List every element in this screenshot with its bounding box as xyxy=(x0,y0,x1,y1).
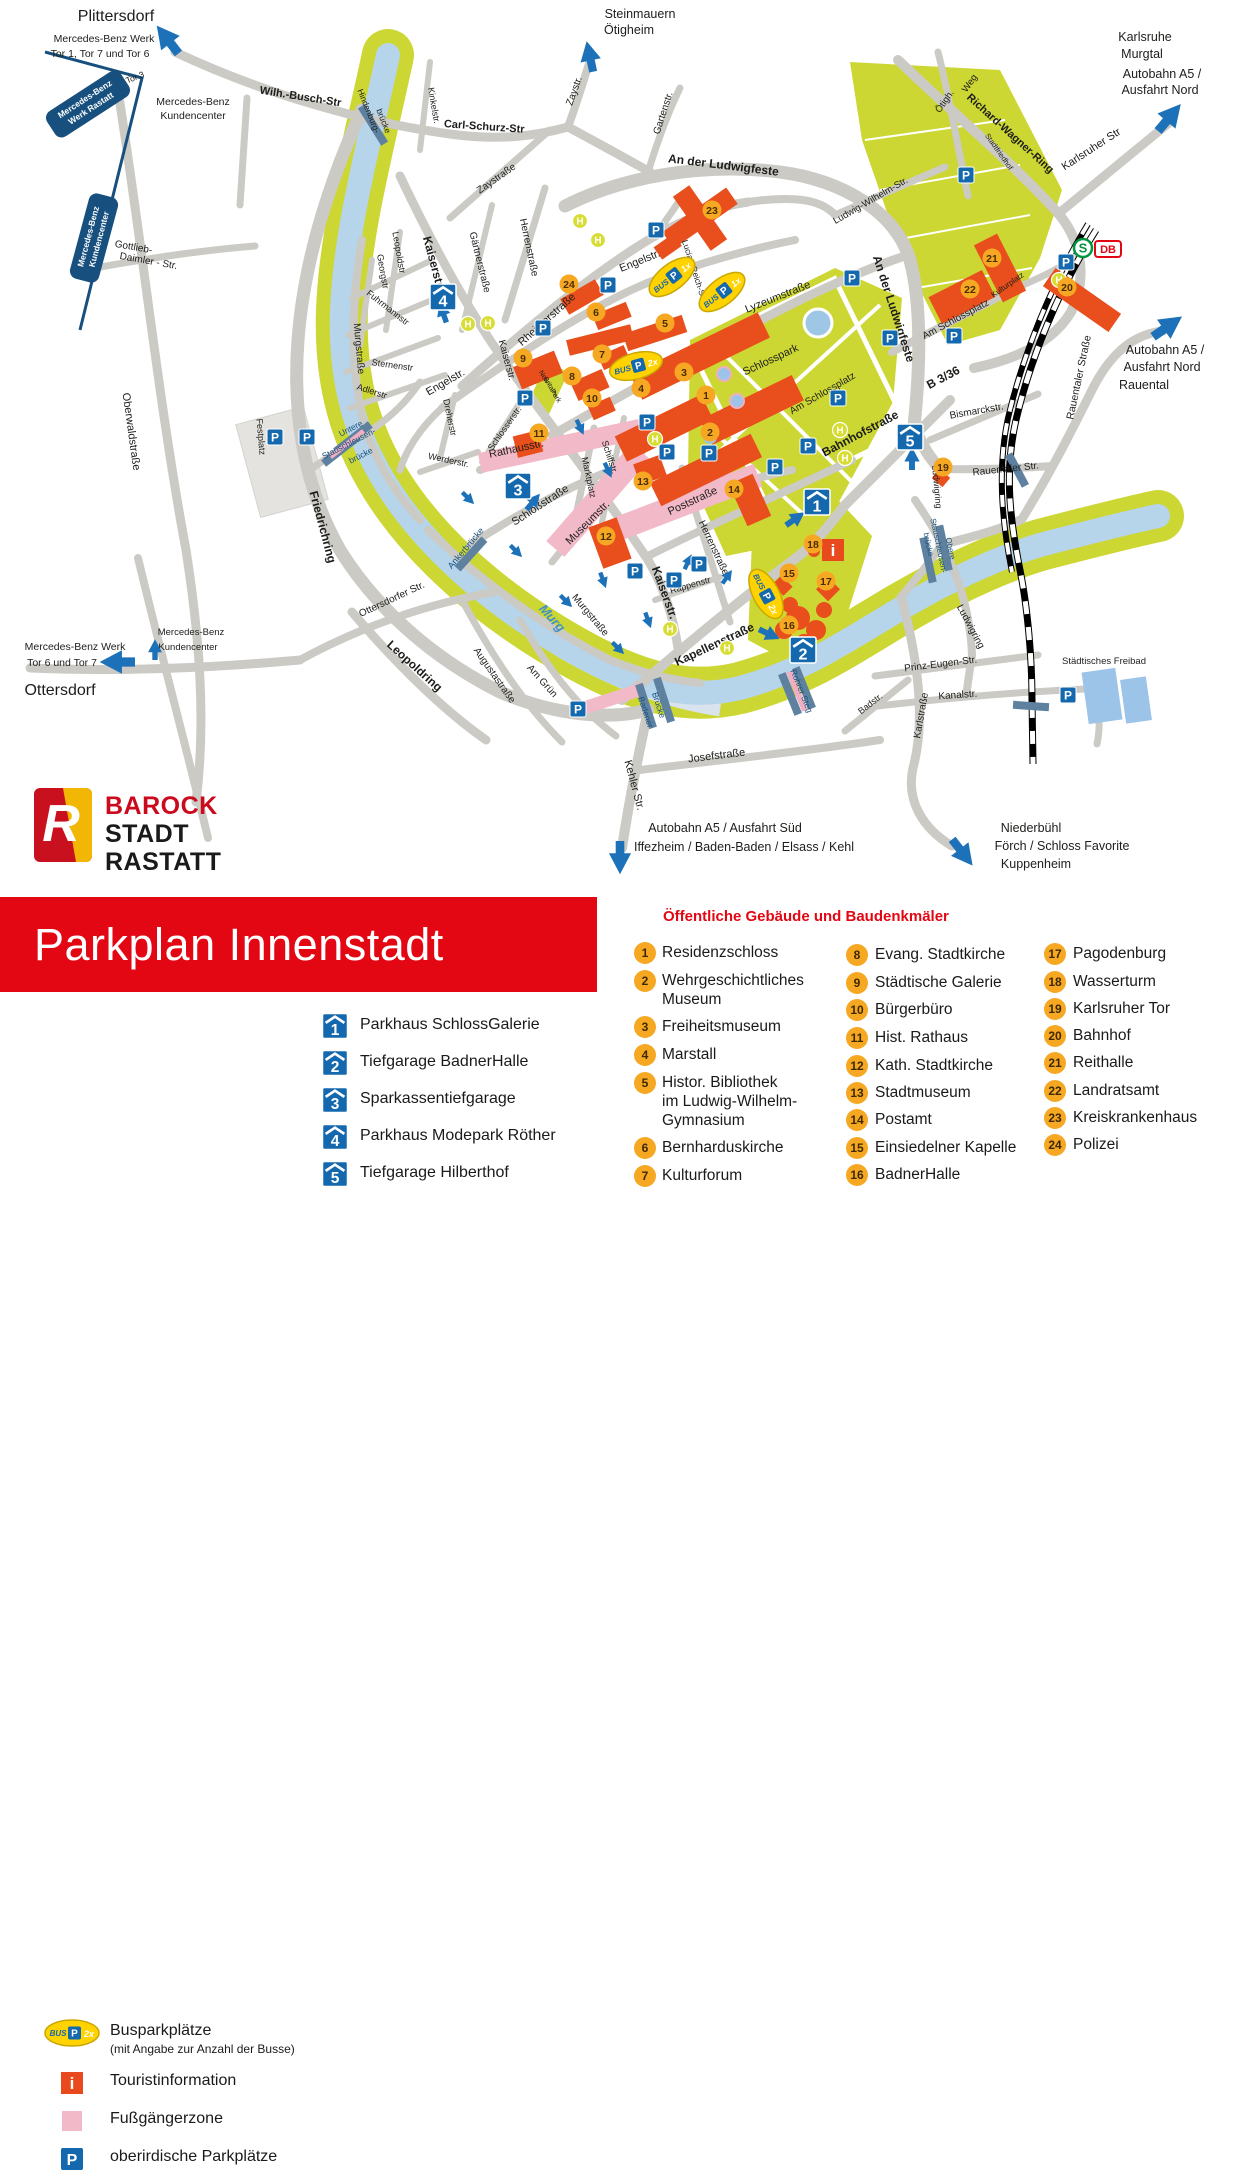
svg-text:18: 18 xyxy=(807,539,819,551)
poi-number-badge: 14 xyxy=(846,1109,868,1131)
poi-item-label: BadnerHalle xyxy=(875,1165,960,1184)
road xyxy=(902,600,952,846)
parking-icon: P xyxy=(666,572,682,588)
poi-marker-2: 2 xyxy=(701,423,720,442)
parking-icon: P xyxy=(844,270,860,286)
poi-marker-12: 12 xyxy=(597,527,616,546)
map-label: Mercedes-Benz Werk xyxy=(25,641,127,653)
poi-item-label: Evang. Stadtkirche xyxy=(875,945,1005,964)
direction-arrow-icon xyxy=(609,841,631,874)
map-label: Oberwaldstraße xyxy=(120,392,143,471)
svg-text:17: 17 xyxy=(820,576,832,588)
svg-text:P: P xyxy=(539,322,547,336)
svg-text:P: P xyxy=(271,431,279,445)
poi-marker-4: 4 xyxy=(632,379,651,398)
poi-marker-19: 19 xyxy=(934,458,953,477)
logo-line2: STADT xyxy=(105,820,221,848)
garage-item-label: Sparkassentiefgarage xyxy=(360,1090,516,1108)
garage-item-label: Tiefgarage BadnerHalle xyxy=(360,1053,528,1071)
svg-text:2: 2 xyxy=(331,1059,340,1076)
garage-4-icon: 4 xyxy=(320,1122,350,1152)
map-label: Steinmauern xyxy=(605,7,676,21)
poi-marker-11: 11 xyxy=(530,424,549,443)
poi-heading: Öffentliche Gebäude und Baudenkmäler xyxy=(663,908,949,925)
svg-text:3: 3 xyxy=(331,1096,340,1113)
svg-text:5: 5 xyxy=(331,1170,340,1187)
svg-text:16: 16 xyxy=(783,620,795,632)
poi-item-label: Landratsamt xyxy=(1073,1081,1159,1100)
garage-item-label: Parkhaus Modepark Röther xyxy=(360,1127,556,1145)
map-label: Tor 6 und Tor 7 xyxy=(27,657,97,669)
svg-text:19: 19 xyxy=(937,462,949,474)
info-icon: i xyxy=(42,2068,102,2098)
bus-stop-icon: H xyxy=(573,214,588,229)
map-legend: BUSP2xBusparkplätze(mit Angabe zur Anzah… xyxy=(0,1000,320,1200)
road xyxy=(240,98,247,205)
svg-text:i: i xyxy=(831,541,836,560)
map-label: Ausfahrt Nord xyxy=(1123,360,1200,374)
svg-text:1: 1 xyxy=(703,390,709,402)
poi-marker-3: 3 xyxy=(675,363,694,382)
direction-arrow-icon xyxy=(640,611,656,630)
svg-text:H: H xyxy=(594,236,601,247)
svg-text:H: H xyxy=(841,454,848,465)
svg-text:15: 15 xyxy=(783,568,795,580)
bus-stop-icon: H xyxy=(838,451,853,466)
city-map: Mercedes-BenzWerk RastattMercedes-BenzKu… xyxy=(0,0,1240,915)
road xyxy=(640,740,880,770)
svg-text:3: 3 xyxy=(514,481,523,499)
svg-text:5: 5 xyxy=(662,318,668,330)
page-title: Parkplan Innenstadt xyxy=(0,897,597,992)
svg-text:P: P xyxy=(652,224,660,238)
poi-number-badge: 17 xyxy=(1044,943,1066,965)
parking-icon: P xyxy=(701,445,717,461)
bus-stop-icon: H xyxy=(591,233,606,248)
svg-text:P: P xyxy=(771,461,779,475)
poi-number-badge: 1 xyxy=(634,942,656,964)
map-label: Murgtal xyxy=(1121,47,1163,61)
poi-item-label: Bernharduskirche xyxy=(662,1138,783,1157)
svg-text:13: 13 xyxy=(637,476,649,488)
parking-icon: P xyxy=(691,556,707,572)
poi-marker-15: 15 xyxy=(780,564,799,583)
svg-text:P: P xyxy=(574,703,582,717)
svg-text:P: P xyxy=(705,447,713,461)
poi-number-badge: 9 xyxy=(846,972,868,994)
garage-marker-4: 4 xyxy=(430,284,456,310)
svg-text:11: 11 xyxy=(533,428,544,440)
svg-text:P: P xyxy=(643,416,651,430)
poi-marker-5: 5 xyxy=(656,314,675,333)
svg-text:P: P xyxy=(834,392,842,406)
parking-icon: P xyxy=(299,429,315,445)
parking-icon: P xyxy=(648,222,664,238)
poi-number-badge: 3 xyxy=(634,1016,656,1038)
svg-text:20: 20 xyxy=(1061,282,1073,294)
garage-item-label: Parkhaus SchlossGalerie xyxy=(360,1016,540,1034)
svg-text:H: H xyxy=(576,217,583,228)
logo-line1: BAROCK xyxy=(105,792,221,820)
svg-text:P: P xyxy=(521,392,529,406)
svg-text:P: P xyxy=(1062,256,1070,270)
garage-marker-5: 5 xyxy=(897,424,923,450)
poi-item-label: Histor. Bibliothekim Ludwig-Wilhelm-Gymn… xyxy=(662,1073,797,1130)
svg-text:BUS: BUS xyxy=(50,2029,68,2038)
poi-marker-24: 24 xyxy=(560,275,579,294)
parking-icon: P xyxy=(800,438,816,454)
poi-number-badge: 24 xyxy=(1044,1134,1066,1156)
map-label: Karlsruhe xyxy=(1118,30,1172,44)
garage-marker-2: 2 xyxy=(790,637,816,663)
road xyxy=(568,127,650,172)
garage-marker-1: 1 xyxy=(804,489,830,515)
map-label: Wilh.-Busch-Str xyxy=(259,85,343,110)
svg-text:H: H xyxy=(836,426,843,437)
map-label: Förch / Schloss Favorite xyxy=(995,839,1130,853)
map-label: Städtisches Freibad xyxy=(1062,656,1146,667)
poi-item-label: Bahnhof xyxy=(1073,1026,1131,1045)
poi-marker-6: 6 xyxy=(587,303,606,322)
svg-text:4: 4 xyxy=(331,1133,340,1150)
garage-5-icon: 5 xyxy=(320,1159,350,1189)
svg-text:14: 14 xyxy=(728,484,740,496)
parking-icon: P xyxy=(570,701,586,717)
poi-item-label: Reithalle xyxy=(1073,1053,1133,1072)
svg-text:23: 23 xyxy=(706,205,718,217)
poi-marker-9: 9 xyxy=(514,349,533,368)
svg-text:6: 6 xyxy=(593,307,599,319)
bus-stop-icon: H xyxy=(720,641,735,656)
poi-number-badge: 23 xyxy=(1044,1107,1066,1129)
map-label: Iffezheim / Baden-Baden / Elsass / Kehl xyxy=(634,840,854,854)
map-label: Ötigheim xyxy=(604,23,654,37)
svg-text:P: P xyxy=(804,440,812,454)
svg-text:H: H xyxy=(484,319,491,330)
poi-item-label: Polizei xyxy=(1073,1135,1119,1154)
parking-icon: P xyxy=(659,444,675,460)
map-label: Niederbühl xyxy=(1001,821,1061,835)
poi-number-badge: 21 xyxy=(1044,1052,1066,1074)
bus-stop-icon: H xyxy=(648,432,663,447)
db-icon: DB xyxy=(1095,241,1121,257)
parking-icon: P xyxy=(830,390,846,406)
poi-number-badge: 7 xyxy=(634,1165,656,1187)
parking-icon: P xyxy=(267,429,283,445)
pedzone-icon xyxy=(42,2106,102,2136)
svg-text:P: P xyxy=(886,332,894,346)
poi-item-label: Karlsruher Tor xyxy=(1073,999,1170,1018)
svg-text:H: H xyxy=(464,320,471,331)
map-label: Tor 3 xyxy=(124,69,146,85)
parking-icon: P xyxy=(639,414,655,430)
poi-item-label: Pagodenburg xyxy=(1073,944,1166,963)
direction-arrow-icon xyxy=(595,571,611,590)
direction-arrow-icon xyxy=(1146,307,1188,347)
map-label: Mercedes-Benz xyxy=(158,627,225,638)
map-label: Sternenstr xyxy=(371,357,414,373)
poi-item-label: Hist. Rathaus xyxy=(875,1028,968,1047)
city-logo: R BAROCK STADT RASTATT xyxy=(33,786,293,886)
svg-text:2: 2 xyxy=(799,645,808,663)
map-label: Kuppenheim xyxy=(1001,857,1071,871)
poi-item-label: Postamt xyxy=(875,1110,932,1129)
factory-label-box: Mercedes-BenzKundencenter xyxy=(68,192,120,285)
poi-number-badge: 6 xyxy=(634,1137,656,1159)
svg-text:2x: 2x xyxy=(83,2029,95,2039)
map-label: Kundencenter xyxy=(158,642,217,653)
buspark-icon: BUSP2x xyxy=(42,2018,102,2048)
garage-2-icon: 2 xyxy=(320,1048,350,1078)
map-label: Kinkelstr. xyxy=(426,87,442,125)
parking-icon: P xyxy=(600,277,616,293)
svg-text:9: 9 xyxy=(520,353,526,365)
svg-text:5: 5 xyxy=(906,432,915,450)
poi-number-badge: 11 xyxy=(846,1027,868,1049)
svg-text:1: 1 xyxy=(813,497,822,515)
tourist-info-icon: i xyxy=(822,539,844,561)
svg-text:8: 8 xyxy=(569,371,575,383)
poi-marker-16: 16 xyxy=(780,616,799,635)
poi-number-badge: 22 xyxy=(1044,1080,1066,1102)
poi-marker-17: 17 xyxy=(817,572,836,591)
legend-item-label: Fußgängerzone xyxy=(110,2110,223,2128)
svg-text:P: P xyxy=(631,565,639,579)
parking-icon: P xyxy=(882,330,898,346)
direction-arrow-icon xyxy=(458,488,478,508)
poi-marker-1: 1 xyxy=(697,386,716,405)
logo-emblem-icon: R xyxy=(33,786,95,866)
garage-legend: 1Parkhaus SchlossGalerie2Tiefgarage Badn… xyxy=(300,1000,640,1220)
road xyxy=(748,199,835,215)
bus-stop-icon: H xyxy=(481,316,496,331)
legend-item-sublabel: (mit Angabe zur Anzahl der Busse) xyxy=(110,2042,295,2056)
poi-marker-20: 20 xyxy=(1058,278,1077,297)
svg-text:P: P xyxy=(663,446,671,460)
direction-arrow-icon xyxy=(943,833,981,873)
poi-number-badge: 10 xyxy=(846,999,868,1021)
map-label: Kundencenter xyxy=(160,110,226,122)
logo-line3: RASTATT xyxy=(105,848,221,876)
svg-text:P: P xyxy=(695,558,703,572)
poi-item-label: Marstall xyxy=(662,1045,716,1064)
poi-number-badge: 5 xyxy=(634,1072,656,1094)
map-label: Zaystraße xyxy=(475,161,519,196)
poi-marker-10: 10 xyxy=(583,389,602,408)
poi-number-badge: 13 xyxy=(846,1082,868,1104)
svg-text:H: H xyxy=(723,644,730,655)
svg-text:22: 22 xyxy=(964,284,976,296)
poi-marker-8: 8 xyxy=(563,367,582,386)
garage-marker-3: 3 xyxy=(505,473,531,499)
sbahn-icon: S xyxy=(1074,239,1092,257)
svg-text:R: R xyxy=(42,795,80,853)
garage-1-icon: 1 xyxy=(320,1011,350,1041)
map-label: Rauental xyxy=(1119,378,1169,392)
poi-number-badge: 12 xyxy=(846,1055,868,1077)
parking-icon: P xyxy=(958,167,974,183)
parking-icon: P xyxy=(1060,687,1076,703)
map-label: Mercedes-Benz Werk xyxy=(54,33,156,45)
parking-icon: P xyxy=(767,459,783,475)
svg-text:1: 1 xyxy=(331,1022,340,1039)
svg-text:P: P xyxy=(71,2029,78,2040)
poi-number-badge: 8 xyxy=(846,944,868,966)
poi-number-badge: 4 xyxy=(634,1044,656,1066)
poi-marker-18: 18 xyxy=(804,535,823,554)
poi-item-label: Stadtmuseum xyxy=(875,1083,971,1102)
poi-marker-22: 22 xyxy=(961,280,980,299)
poi-item-label: Residenzschloss xyxy=(662,943,778,962)
poi-marker-13: 13 xyxy=(634,472,653,491)
parking-icon: P xyxy=(1058,254,1074,270)
svg-text:P: P xyxy=(1064,689,1072,703)
map-label: Rauentaler Str. xyxy=(972,461,1040,479)
bus-stop-icon: H xyxy=(461,317,476,332)
parking-icon: P xyxy=(42,2144,102,2174)
parking-icon: P xyxy=(946,328,962,344)
svg-text:P: P xyxy=(848,272,856,286)
poi-item-label: WehrgeschichtlichesMuseum xyxy=(662,971,804,1009)
svg-text:4: 4 xyxy=(439,292,448,310)
map-label: Tor 1, Tor 7 und Tor 6 xyxy=(51,48,150,60)
svg-text:3: 3 xyxy=(681,367,687,379)
poi-number-badge: 16 xyxy=(846,1164,868,1186)
direction-arrow-icon xyxy=(576,39,603,74)
poi-item-label: Kath. Stadtkirche xyxy=(875,1056,993,1075)
map-label: Autobahn A5 / xyxy=(1126,343,1205,357)
garage-3-icon: 3 xyxy=(320,1085,350,1115)
poi-marker-21: 21 xyxy=(983,249,1002,268)
poi-item-label: Kreiskrankenhaus xyxy=(1073,1108,1197,1127)
poi-item-label: Einsiedelner Kapelle xyxy=(875,1138,1016,1157)
parking-icon: P xyxy=(535,320,551,336)
bus-stop-icon: H xyxy=(833,423,848,438)
garage-item-label: Tiefgarage Hilberthof xyxy=(360,1164,509,1182)
svg-text:P: P xyxy=(604,279,612,293)
legend-item-label: Busparkplätze xyxy=(110,2022,211,2040)
map-label: Plittersdorf xyxy=(78,8,155,25)
map-label: Autobahn A5 / Ausfahrt Süd xyxy=(648,821,802,835)
poi-number-badge: 18 xyxy=(1044,971,1066,993)
parking-icon: P xyxy=(627,563,643,579)
poi-item-label: Städtische Galerie xyxy=(875,973,1002,992)
poi-item-label: Freiheitsmuseum xyxy=(662,1017,781,1036)
legend-item-label: oberirdische Parkplätze xyxy=(110,2148,277,2166)
map-svg: Mercedes-BenzWerk RastattMercedes-BenzKu… xyxy=(0,0,1240,915)
bridge-bar xyxy=(1013,701,1049,711)
map-label: Kanalstr. xyxy=(938,689,978,703)
title-banner: Parkplan Innenstadt xyxy=(0,897,597,992)
road xyxy=(420,62,430,150)
poi-number-badge: 20 xyxy=(1044,1025,1066,1047)
svg-text:DB: DB xyxy=(1100,244,1116,256)
poi-number-badge: 15 xyxy=(846,1137,868,1159)
poi-item-label: Kulturforum xyxy=(662,1166,742,1185)
svg-text:i: i xyxy=(70,2074,75,2093)
parking-icon: P xyxy=(517,390,533,406)
direction-arrow-icon xyxy=(506,541,526,561)
svg-text:S: S xyxy=(1079,241,1088,256)
svg-text:7: 7 xyxy=(599,349,605,361)
poi-item-label: Wasserturm xyxy=(1073,972,1156,991)
svg-text:H: H xyxy=(666,625,673,636)
svg-text:10: 10 xyxy=(586,393,598,405)
poi-marker-7: 7 xyxy=(593,345,612,364)
svg-text:4: 4 xyxy=(638,383,644,395)
legend-item-label: Touristinformation xyxy=(110,2072,236,2090)
svg-text:P: P xyxy=(950,330,958,344)
map-label: Ausfahrt Nord xyxy=(1121,83,1198,97)
svg-text:P: P xyxy=(67,2152,78,2169)
svg-text:P: P xyxy=(303,431,311,445)
poi-item-label: Bürgerbüro xyxy=(875,1000,953,1019)
bus-stop-icon: H xyxy=(663,622,678,637)
svg-text:P: P xyxy=(962,169,970,183)
poi-marker-23: 23 xyxy=(703,201,722,220)
svg-text:12: 12 xyxy=(600,531,612,543)
poi-number-badge: 2 xyxy=(634,970,656,992)
map-label: Autobahn A5 / xyxy=(1123,67,1202,81)
map-label: B 3/36 xyxy=(924,363,962,392)
svg-text:21: 21 xyxy=(986,253,998,265)
svg-text:H: H xyxy=(651,435,658,446)
poi-number-badge: 19 xyxy=(1044,998,1066,1020)
map-label: Ottersdorf xyxy=(24,682,96,699)
map-label: Mercedes-Benz xyxy=(156,96,230,108)
poi-marker-14: 14 xyxy=(725,480,744,499)
svg-text:24: 24 xyxy=(563,279,575,291)
svg-text:P: P xyxy=(670,574,678,588)
svg-text:2: 2 xyxy=(707,427,713,439)
